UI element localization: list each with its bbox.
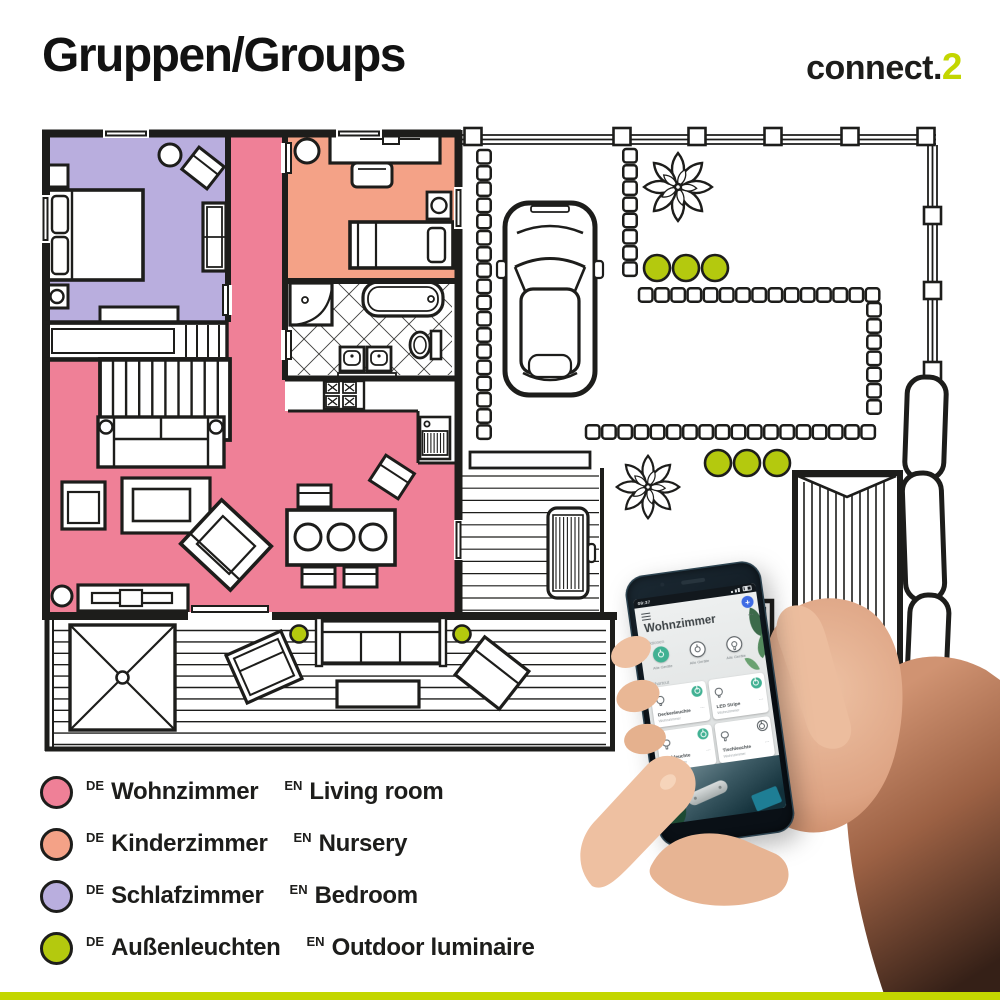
bottom-accent-bar: [0, 992, 1000, 1000]
brand-text: connect.: [806, 49, 942, 87]
car-icon: [497, 203, 603, 395]
card-overflow-icon[interactable]: ⋯: [758, 696, 764, 703]
umbrella: [70, 625, 175, 730]
brand-accent: 2: [942, 46, 962, 87]
action-all-off[interactable]: Alle Geräte: [681, 639, 716, 666]
device-card-led-stripe[interactable]: LED Stripe ⋯ Wohnzimmer: [708, 672, 769, 719]
outdoor-light-dot: [291, 626, 308, 643]
legend-swatch-bedroom: [40, 880, 73, 913]
deck-table: [337, 681, 419, 707]
power-toggle[interactable]: [691, 685, 703, 697]
power-toggle[interactable]: [750, 676, 762, 688]
battery-icon: [742, 585, 752, 592]
status-icons: [730, 585, 752, 594]
action-all-devices[interactable]: Alle Geräte: [717, 634, 752, 661]
outdoor-light-dot: [702, 255, 728, 281]
outdoor-light-dot: [644, 255, 670, 281]
legend-row-bedroom: DE Schlafzimmer EN Bedroom: [40, 870, 535, 922]
toilet-tank: [431, 331, 441, 359]
shower: [290, 283, 332, 325]
sofa: [98, 417, 224, 467]
low-dresser: [100, 307, 178, 322]
legend-swatch-outdoor: [40, 932, 73, 965]
status-time: 09:37: [637, 599, 650, 606]
legend-swatch-nursery: [40, 828, 73, 861]
power-toggle[interactable]: [697, 728, 709, 740]
device-photo: [751, 786, 782, 812]
app-title: Wohnzimmer: [644, 614, 717, 636]
signal-icon: [734, 589, 736, 593]
device-cards: Deckenleuchte ⋯ Wohnzimmer LED Stripe ⋯ …: [650, 672, 776, 771]
tv-sideboard: [78, 585, 188, 611]
bulb-icon[interactable]: [725, 635, 743, 653]
floor-lamp: [52, 586, 72, 606]
brand-logo: connect.2: [806, 46, 962, 88]
card-overflow-icon[interactable]: ⋯: [700, 704, 706, 711]
sink: [367, 347, 391, 371]
wifi-icon: [738, 588, 741, 592]
outdoor-light-dot: [734, 450, 760, 476]
legend-swatch-living: [40, 776, 73, 809]
pillow: [52, 196, 68, 233]
legend-row-living: DE Wohnzimmer EN Living room: [40, 766, 535, 818]
pillow: [52, 237, 68, 274]
desk-chair: [352, 163, 392, 187]
floor-plan-illustration: [40, 125, 965, 770]
deck: [45, 616, 615, 751]
round-table: [159, 144, 181, 166]
power-toggle[interactable]: [756, 719, 768, 731]
legend-row-nursery: DE Kinderzimmer EN Nursery: [40, 818, 535, 870]
outdoor-light-dot: [673, 255, 699, 281]
bulb-icon: [714, 687, 722, 695]
outdoor-light-dot: [764, 450, 790, 476]
nightstand: [47, 165, 68, 187]
kitchen-sink: [420, 417, 450, 459]
outdoor-light-dot: [705, 450, 731, 476]
card-overflow-icon[interactable]: ⋯: [765, 739, 771, 746]
wardrobe: [46, 323, 227, 359]
overflow-menu-icon[interactable]: ⋯: [747, 611, 755, 619]
earpiece-speaker-icon: [680, 578, 704, 585]
signal-icon: [731, 591, 733, 594]
stool: [295, 139, 319, 163]
device-card-deckenleuchte[interactable]: Deckenleuchte ⋯ Wohnzimmer: [650, 681, 711, 728]
status-bar: 09:37: [633, 583, 756, 609]
plant-leaf-decoration: [744, 655, 759, 674]
garden-gate: [795, 473, 900, 700]
flower-icon: [617, 456, 680, 519]
bulb-icon: [721, 730, 729, 738]
outdoor-light-dot: [814, 650, 842, 678]
stove: [324, 381, 364, 409]
power-off-icon[interactable]: [689, 640, 707, 658]
action-all-on[interactable]: Alle Geräte: [644, 644, 679, 671]
phone-screen: 09:37 + ⋯ Wohnzimmer Aktionen Alle Gerät…: [633, 583, 786, 825]
legend-row-outdoor: DE Außenleuchten EN Outdoor luminaire: [40, 922, 535, 974]
front-camera-icon: [660, 582, 665, 587]
plant-leaf-decoration: [664, 805, 692, 825]
card-overflow-icon[interactable]: ⋯: [706, 747, 712, 754]
menu-icon[interactable]: [641, 613, 651, 623]
power-on-icon[interactable]: [652, 645, 670, 663]
grill: [548, 508, 595, 598]
legend: DE Wohnzimmer EN Living room DE Kinderzi…: [40, 766, 535, 974]
remote-control-photo: [686, 778, 730, 807]
bulb-icon: [656, 696, 664, 704]
device-card-stehleuchte[interactable]: Stehleuchte ⋯ Wohnzimmer: [656, 724, 717, 771]
page-title: Gruppen/Groups: [42, 28, 405, 83]
sink: [340, 347, 364, 371]
flower-icon: [644, 153, 712, 221]
outdoor-light-dot: [454, 626, 471, 643]
pillow: [428, 228, 445, 262]
bulb-icon: [662, 739, 670, 747]
side-patio: [461, 452, 602, 616]
outdoor-sofa: [316, 618, 446, 666]
add-button[interactable]: +: [741, 595, 755, 609]
